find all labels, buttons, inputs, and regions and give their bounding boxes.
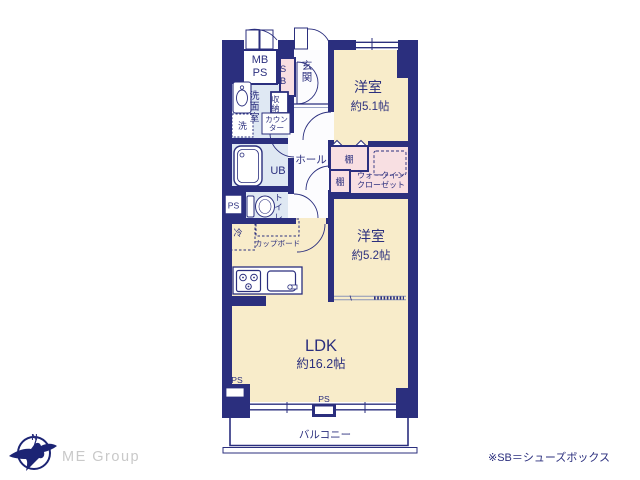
unit-bath-label: UB	[270, 165, 285, 177]
balcony-label: バルコニー	[299, 429, 351, 441]
bedroom1-size: 約5.1帖	[351, 99, 390, 113]
shoe-box-label: SB	[278, 64, 289, 88]
pipe-space-label: PS	[253, 67, 268, 79]
floor-plan-page: MB PS SB 玄関 洗面室 収納 カウン ター 洗 ホール UB トイレ P…	[0, 0, 640, 480]
hall-label: ホール	[295, 154, 327, 166]
washer-label: 洗	[238, 120, 247, 131]
stove-icon	[237, 271, 261, 292]
ldk-size: 約16.2帖	[296, 356, 345, 371]
bedroom1-window	[356, 40, 398, 50]
bedroom1-label: 洋室	[354, 79, 382, 95]
cupboard-label: カップボード	[255, 239, 301, 248]
wic-label-1: ウォークイン	[357, 171, 405, 180]
ldk-label: LDK	[305, 337, 337, 355]
brand-logo: N ME Group	[9, 432, 140, 471]
pipe-space-bl-label: PS	[231, 375, 243, 385]
storage-label: 収納	[271, 94, 280, 113]
wic-label-2: クローゼット	[357, 180, 405, 190]
bedroom2-size: 約5.2帖	[352, 248, 391, 262]
bedroom1-floor	[334, 50, 408, 146]
toilet-icon	[247, 196, 275, 217]
shelf-label-2: 棚	[335, 176, 344, 187]
fridge-label: 冷	[233, 227, 242, 238]
counter-label-2: ター	[269, 124, 284, 133]
shoebox-note: ※SB＝シューズボックス	[488, 450, 610, 464]
meterbox-door-panel	[246, 30, 259, 49]
balcony-rail	[223, 448, 417, 454]
bedroom2-label: 洋室	[357, 228, 385, 244]
meterbox-label: MB	[252, 54, 269, 66]
floor-plan: MB PS SB 玄関 洗面室 収納 カウン ター 洗 ホール UB トイレ P…	[0, 0, 640, 480]
washroom-label: 洗面室	[247, 90, 259, 123]
pipe-space-bottom-label: PS	[318, 394, 330, 404]
toilet-label: トイレ	[274, 193, 284, 222]
bathtub-icon	[234, 146, 262, 186]
sink-icon	[268, 271, 298, 291]
pipe-space-left-label: PS	[228, 201, 240, 211]
shelf-label-1: 棚	[344, 154, 353, 165]
pipe-space-bottomleft-box	[226, 388, 244, 397]
entrance-door-panel	[295, 28, 308, 49]
entrance-label: 玄関	[301, 59, 313, 83]
brand-name: ME Group	[62, 449, 140, 465]
compass-north-label: N	[31, 432, 37, 442]
